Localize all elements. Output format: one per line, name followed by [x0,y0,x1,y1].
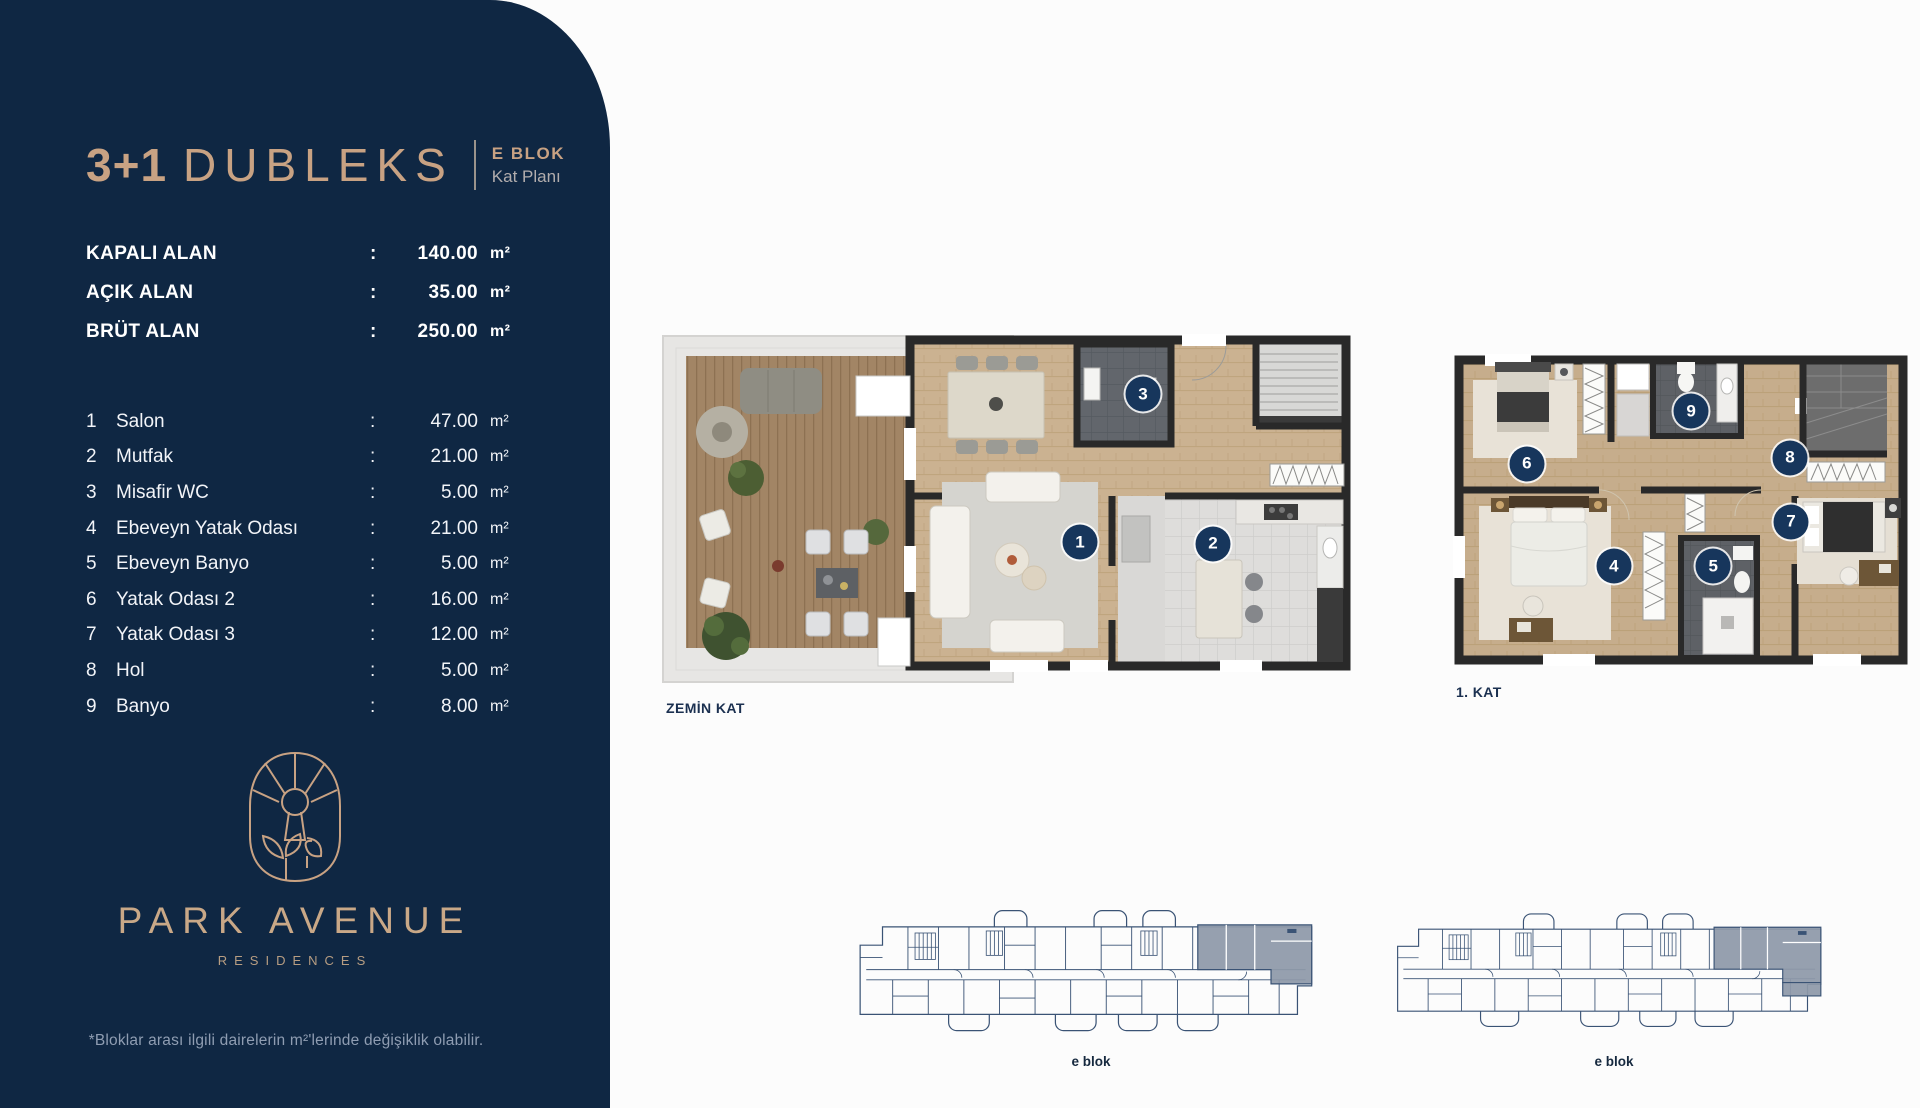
area-unit: m² [478,323,522,341]
room-area-unit: m² [478,591,522,609]
area-unit: m² [478,284,522,302]
separator: : [370,518,390,540]
separator: : [370,624,390,646]
room-row: 8 Hol : 5.00 m² [86,653,522,689]
room-marker-2: 2 [1196,526,1231,561]
brand-logo: PARK AVENUE RESIDENCES [75,750,515,968]
separator: : [370,589,390,611]
block-sublabel: Kat Planı [492,167,565,187]
separator: : [370,411,390,433]
room-name: Yatak Odası 3 [116,624,370,646]
room-name: Salon [116,411,370,433]
room-area-value: 12.00 [390,624,478,646]
room-row: 7 Yatak Odası 3 : 12.00 m² [86,618,522,654]
room-number: 7 [86,624,116,646]
separator: : [370,660,390,682]
plan-title: 3+1 DUBLEKS E BLOK Kat Planı [86,138,565,192]
room-marker-7: 7 [1773,504,1808,539]
room-name: Yatak Odası 2 [116,589,370,611]
plan-type-word: DUBLEKS [183,138,454,192]
area-label: BRÜT ALAN [86,321,370,343]
room-list: 1 Salon : 47.00 m² 2 Mutfak : 21.00 m² 3… [86,404,522,724]
room-row: 3 Misafir WC : 5.00 m² [86,475,522,511]
room-name: Ebeveyn Banyo [116,553,370,575]
room-row: 6 Yatak Odası 2 : 16.00 m² [86,582,522,618]
ground-floor-plan: 123 [660,320,1360,692]
area-value: 35.00 [390,282,478,304]
sidebar-panel: 3+1 DUBLEKS E BLOK Kat Planı KAPALI ALAN… [0,0,610,1108]
block-info: E BLOK Kat Planı [492,144,565,187]
room-name: Mutfak [116,446,370,468]
room-area-value: 5.00 [390,660,478,682]
room-area-value: 5.00 [390,553,478,575]
room-area-unit: m² [478,484,522,502]
title-divider [474,140,476,190]
room-row: 5 Ebeveyn Banyo : 5.00 m² [86,546,522,582]
room-marker-8: 8 [1773,440,1808,475]
brand-subtitle: RESIDENCES [75,953,515,968]
first-floor-label: 1. KAT [1456,684,1502,700]
room-area-value: 21.00 [390,446,478,468]
ground-floor-label: ZEMİN KAT [666,700,745,716]
area-value: 140.00 [390,243,478,265]
first-floor-plan: 456789 [1451,350,1911,680]
room-number: 5 [86,553,116,575]
room-marker-4: 4 [1596,549,1631,584]
separator: : [370,446,390,468]
room-name: Misafir WC [116,482,370,504]
block-plan-right-drawing [1390,884,1838,1042]
area-label: AÇIK ALAN [86,282,370,304]
room-area-value: 21.00 [390,518,478,540]
room-number: 2 [86,446,116,468]
area-summary-list: KAPALI ALAN : 140.00 m² AÇIK ALAN : 35.0… [86,234,522,351]
area-unit: m² [478,245,522,263]
room-marker-9: 9 [1674,394,1709,429]
room-area-unit: m² [478,448,522,466]
room-area-value: 16.00 [390,589,478,611]
room-number: 6 [86,589,116,611]
park-avenue-logo-icon [243,750,347,884]
room-marker-6: 6 [1509,446,1544,481]
area-summary-row: KAPALI ALAN : 140.00 m² [86,234,522,273]
block-label: E BLOK [492,144,565,164]
room-number: 9 [86,696,116,718]
area-summary-row: AÇIK ALAN : 35.00 m² [86,273,522,312]
room-area-unit: m² [478,555,522,573]
area-summary-row: BRÜT ALAN : 250.00 m² [86,312,522,351]
room-number: 1 [86,411,116,433]
block-plan-left [852,884,1330,1042]
block-plan-right [1390,884,1838,1042]
separator: : [370,243,390,265]
block-caption-left: e blok [852,1054,1330,1069]
room-name: Banyo [116,696,370,718]
room-area-value: 5.00 [390,482,478,504]
disclaimer-footnote: *Bloklar arası ilgili dairelerin m²'leri… [0,1032,572,1050]
room-row: 1 Salon : 47.00 m² [86,404,522,440]
area-value: 250.00 [390,321,478,343]
room-area-unit: m² [478,520,522,538]
room-row: 9 Banyo : 8.00 m² [86,689,522,725]
separator: : [370,696,390,718]
room-number: 4 [86,518,116,540]
room-marker-5: 5 [1696,549,1731,584]
block-caption-right: e blok [1390,1054,1838,1069]
room-name: Hol [116,660,370,682]
room-row: 4 Ebeveyn Yatak Odası : 21.00 m² [86,511,522,547]
room-area-unit: m² [478,626,522,644]
room-area-unit: m² [478,413,522,431]
area-label: KAPALI ALAN [86,243,370,265]
room-name: Ebeveyn Yatak Odası [116,518,370,540]
separator: : [370,482,390,504]
room-area-unit: m² [478,698,522,716]
room-row: 2 Mutfak : 21.00 m² [86,440,522,476]
separator: : [370,282,390,304]
page: { "sidebar": { "title_number": "3+1", "t… [0,0,1920,1108]
ground-floor-plan-drawing [660,320,1360,692]
separator: : [370,321,390,343]
plan-type-number: 3+1 [86,138,167,192]
room-marker-3: 3 [1126,377,1161,412]
room-area-value: 8.00 [390,696,478,718]
room-number: 3 [86,482,116,504]
room-area-unit: m² [478,662,522,680]
room-area-value: 47.00 [390,411,478,433]
room-marker-1: 1 [1063,525,1098,560]
separator: : [370,553,390,575]
brand-name: PARK AVENUE [75,900,515,942]
block-plan-left-drawing [852,884,1330,1042]
room-number: 8 [86,660,116,682]
